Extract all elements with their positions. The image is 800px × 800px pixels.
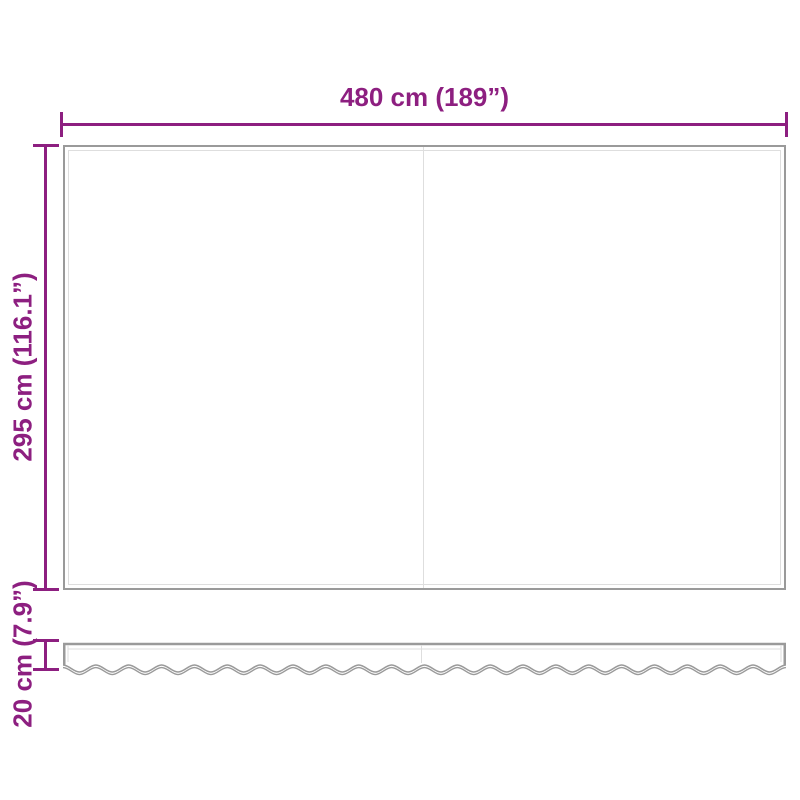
- width-dimension-line: [62, 123, 787, 126]
- fabric-panel-inner-hem: [68, 150, 781, 585]
- fabric-center-seam: [423, 147, 424, 588]
- fabric-panel: [63, 145, 786, 590]
- valance-height-dimension-label: 20 cm (7.9”): [8, 580, 39, 727]
- awning-fabric-dimension-diagram: 480 cm (189”) 295 cm (116.1”) 20 cm (7.9…: [0, 0, 800, 800]
- valance-height-dimension-line: [44, 641, 47, 669]
- valance-inner-hem: [68, 645, 781, 662]
- width-dimension-label: 480 cm (189”): [62, 82, 787, 113]
- valance-height-dimension-cap-bottom: [33, 668, 59, 671]
- height-dimension-line: [44, 145, 47, 590]
- valance-wavy-edge: [63, 665, 786, 672]
- height-dimension-label: 295 cm (116.1”): [8, 272, 39, 461]
- width-dimension-cap-left: [60, 112, 63, 137]
- valance-strip: [63, 642, 786, 678]
- valance-side-edges: [64, 644, 785, 665]
- valance-height-dimension-cap-top: [33, 639, 59, 642]
- height-dimension-cap-top: [33, 144, 59, 147]
- width-dimension-cap-right: [785, 112, 788, 137]
